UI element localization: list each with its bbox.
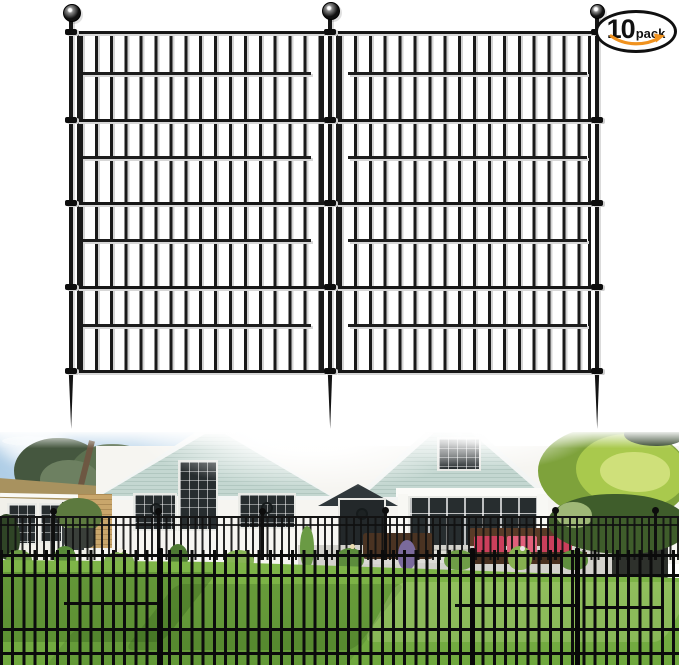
foreground-fence-rail-offset [64,602,160,605]
hwire [77,370,324,373]
midground-fence-finial [382,507,389,514]
ground-spike-icon [67,372,75,429]
right-trees-highlight [600,452,670,492]
connector-knob [591,117,603,123]
product-image: 10pack [0,0,679,665]
connector-knob [65,368,77,374]
connector-knob [591,284,603,290]
hwire-offset [348,72,587,75]
midground-fence-finial [652,507,659,514]
connector-knob [324,29,336,35]
connector-knob [324,200,336,206]
installed-fence-photo [0,432,679,665]
hwire-offset [348,324,587,327]
connector-knob [65,29,77,35]
hwire [77,31,324,34]
connector-knob [324,117,336,123]
midground-fence-rail [0,524,679,526]
foreground-fence-post [470,548,475,665]
ground-spike-icon [326,372,334,429]
hwire-offset [348,156,587,159]
hwire-offset [83,72,311,75]
hwire [77,202,324,205]
hwire-offset [83,239,311,242]
foreground-fence-post [158,548,163,665]
hwire [336,202,591,205]
connector-knob [65,284,77,290]
connector-knob [324,284,336,290]
midground-fence-finial [552,507,559,514]
hwire-offset [83,324,311,327]
fence-post-right [595,17,599,373]
fence-post-left [69,18,73,373]
midground-fence-finial [50,508,57,515]
hwire [336,119,591,122]
connector-knob [65,200,77,206]
midground-fence-finial [259,508,266,515]
connector-knob [591,200,603,206]
connector-knob [324,368,336,374]
hwire-offset [83,156,311,159]
fence-post-middle [328,16,332,373]
flower-dot [350,544,355,549]
hwire [336,370,591,373]
connector-knob [65,117,77,123]
foreground-fence-post [575,548,580,665]
midground-fence-finial [155,508,162,515]
hwire [336,31,591,34]
center-gable-attic-window [437,437,481,471]
ball-finial-icon [63,4,81,22]
ball-finial-icon [322,2,340,20]
amazon-smile-arrow-icon [609,33,667,48]
hwire [77,286,324,289]
foreground-fence-rail-offset [584,606,664,609]
connector-knob [591,368,603,374]
ground-spike-icon [593,372,601,429]
hwire-offset [348,239,587,242]
fence-drawing [0,0,679,432]
hwire [336,286,591,289]
pack-count-badge: 10pack [595,10,677,53]
hwire [77,119,324,122]
